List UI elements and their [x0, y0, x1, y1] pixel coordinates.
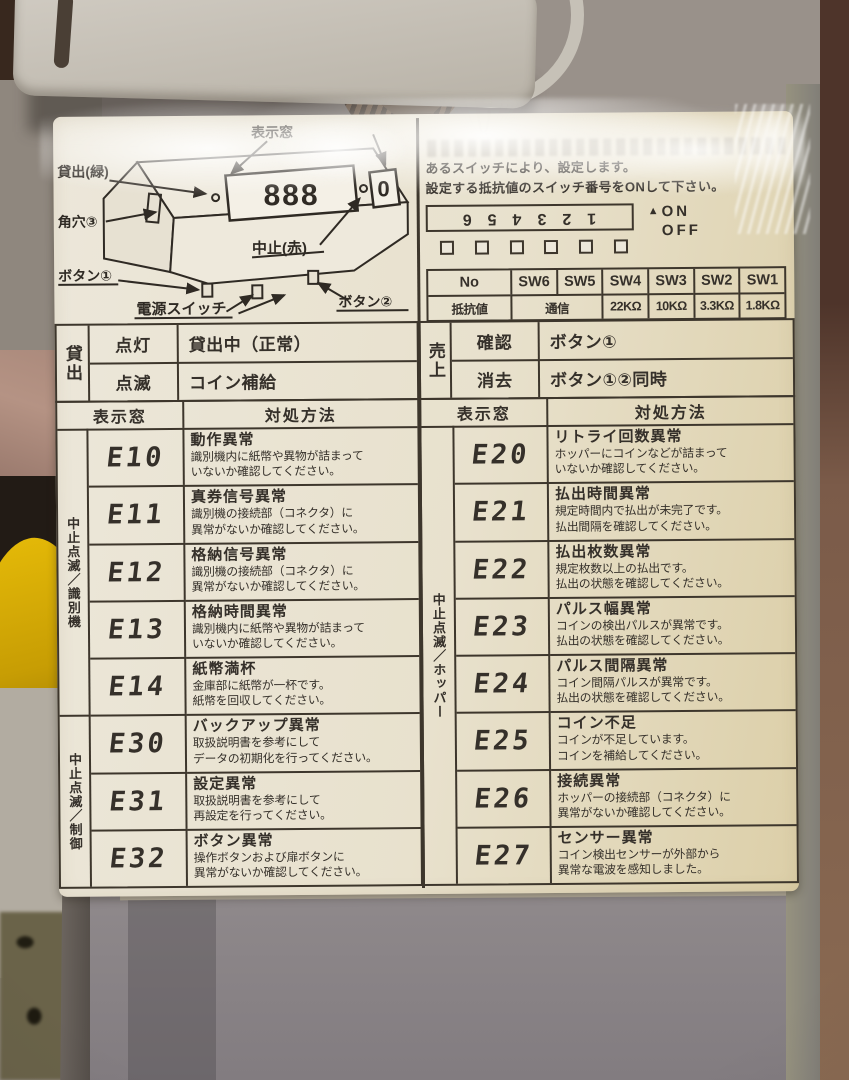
sw-value-sw1: 1.8KΩ — [739, 292, 785, 317]
display-window-label: 表示窓 — [250, 124, 293, 140]
lend-state-on: 点灯 — [90, 325, 179, 362]
error-code: E26 — [457, 769, 551, 827]
device-diagram: 888 0 貸出(緑) 角穴③ 表示窓 中止(赤) — [55, 118, 415, 321]
sw-header-sw4: SW4 — [601, 269, 647, 293]
off-label: OFF — [662, 222, 701, 239]
lend-state-blink: 点滅 — [90, 361, 179, 400]
sales-status-table: 売上 確認 ボタン① 消去 ボタン①②同時 — [419, 318, 796, 400]
error-code: E22 — [455, 540, 549, 598]
error-row: 設定異常 取扱説明書を参考にして 再設定を行ってください。 — [187, 770, 420, 829]
error-title: 格納時間異常 — [192, 602, 416, 622]
error-desc: コインの検出パルスが異常です。 払出の状態を確認してください。 — [556, 617, 792, 650]
button2-label: ボタン② — [338, 293, 392, 309]
instruction-label: 888 0 貸出(緑) 角穴③ 表示窓 中止(赤) — [53, 111, 799, 897]
error-title: 動作異常 — [190, 430, 414, 450]
error-row: 接続異常 ホッパーの接続部（コネクタ）に 異常がないか確認してください。 — [551, 767, 796, 826]
error-desc: コインが不足しています。 コインを補給してください。 — [557, 731, 793, 764]
dip-lever — [440, 241, 454, 255]
sw-header-sw5: SW5 — [556, 269, 602, 293]
error-code: E31 — [91, 771, 187, 829]
error-code: E24 — [456, 654, 550, 712]
error-row: コイン不足 コインが不足しています。 コインを補給してください。 — [551, 709, 796, 768]
error-row: バックアップ異常 取扱説明書を参考にして データの初期化を行ってください。 — [187, 712, 420, 771]
on-off-legend: ▲ON OFF — [648, 203, 701, 241]
sw-value-sw4: 22KΩ — [602, 293, 648, 318]
error-desc: 識別機内に紙幣や異物が詰まって いないか確認してください。 — [192, 620, 416, 652]
lend-row-group-label: 貸出 — [57, 326, 91, 401]
dip-lever — [475, 240, 489, 254]
error-desc: 規定時間内で払出が未完了です。 払出間隔を確認してください。 — [555, 502, 791, 535]
settings-instruction-2: 設定する抵抗値のスイッチ番号をONして下さい。 — [425, 176, 787, 198]
error-desc: 識別機の接続部（コネクタ）に 異常がないか確認してください。 — [191, 563, 415, 595]
lend-desc-on: 貸出中（正常） — [179, 323, 417, 361]
error-title: 払出枚数異常 — [555, 542, 791, 562]
error-code: E23 — [456, 597, 550, 655]
error-title: ボタン異常 — [194, 831, 418, 851]
side-label-hopper: 中止点滅／ホッパー — [421, 426, 458, 884]
dip-lever — [510, 240, 524, 254]
sales-desc-clear: ボタン①②同時 — [540, 357, 793, 397]
error-title: バックアップ異常 — [193, 716, 417, 736]
sw-header-sw6: SW6 — [510, 269, 556, 293]
dip-switch-numbers: 123456 — [447, 208, 613, 227]
error-title: リトライ回数異常 — [554, 427, 790, 447]
sw-value-sw3: 10KΩ — [647, 292, 693, 317]
lend-desc-blink: コイン補給 — [179, 360, 417, 400]
error-row: センサー異常 コイン検出センサーが外部から 異常な電波を感知しました。 — [552, 824, 797, 883]
sales-desc-confirm: ボタン① — [540, 320, 793, 358]
sub-display-digit: 0 — [377, 176, 389, 201]
error-code: E32 — [92, 829, 188, 887]
sw-header-sw3: SW3 — [647, 268, 693, 292]
error-row: リトライ回数異常 ホッパーにコインなどが詰まって いないか確認してください。 — [548, 423, 793, 482]
error-header-action-right: 対処方法 — [548, 397, 793, 425]
settings-section: あるスイッチにより、設定します。 設定する抵抗値のスイッチ番号をONして下さい。… — [425, 121, 789, 321]
sw-row-label: 抵抗値 — [428, 294, 510, 320]
error-desc: コイン間隔パルスが異常です。 払出の状態を確認してください。 — [556, 674, 792, 707]
error-title: 紙幣満杯 — [192, 659, 416, 679]
sales-state-confirm: 確認 — [452, 322, 540, 359]
sw-header-no: No — [428, 270, 510, 295]
error-desc: 識別機内に紙幣や異物が詰まって いないか確認してください。 — [191, 448, 415, 480]
error-desc: コイン検出センサーが外部から 異常な電波を感知しました。 — [558, 846, 794, 879]
up-arrow-icon: ▲ — [648, 205, 662, 219]
error-code: E21 — [455, 482, 549, 540]
error-desc: 取扱説明書を参考にして データの初期化を行ってください。 — [193, 734, 417, 766]
panel-seam — [128, 896, 216, 1080]
error-code: E27 — [458, 826, 552, 884]
sw-header-sw1: SW1 — [738, 268, 784, 292]
error-desc: 操作ボタンおよび扉ボタンに 異常がないか確認してください。 — [194, 849, 418, 881]
error-code: E30 — [91, 714, 187, 772]
error-desc: 識別機の接続部（コネクタ）に 異常がないか確認してください。 — [191, 505, 415, 537]
dip-switch-figure: 123456 ▲ON OFF — [426, 202, 788, 242]
dip-switch-body: 123456 — [426, 203, 634, 232]
metal-bracket — [12, 0, 537, 109]
error-title: 払出時間異常 — [555, 484, 791, 504]
sw-header-sw2: SW2 — [693, 268, 739, 292]
error-code: E13 — [90, 600, 186, 658]
error-header-display-left: 表示窓 — [57, 402, 184, 429]
display-digits: 888 — [263, 179, 319, 212]
error-title: センサー異常 — [558, 828, 794, 848]
sales-state-clear: 消去 — [452, 359, 540, 398]
error-title: パルス間隔異常 — [556, 656, 792, 676]
error-desc: ホッパーにコインなどが詰まって いないか確認してください。 — [555, 445, 791, 478]
error-header-action-left: 対処方法 — [184, 400, 417, 428]
square-hole-label: 角穴③ — [58, 214, 98, 230]
error-row: 動作異常 識別機内に紙幣や異物が詰まって いないか確認してください。 — [184, 426, 417, 485]
error-desc: 規定枚数以上の払出です。 払出の状態を確認してください。 — [555, 560, 791, 593]
error-desc: 金庫部に紙幣が一杯です。 紙幣を回収してください。 — [192, 677, 416, 709]
error-row: パルス幅異常 コインの検出パルスが異常です。 払出の状態を確認してください。 — [550, 595, 795, 654]
error-title: 設定異常 — [193, 774, 417, 794]
error-code: E12 — [89, 542, 185, 600]
error-header-display-right: 表示窓 — [421, 399, 548, 426]
error-desc: ホッパーの接続部（コネクタ）に 異常がないか確認してください。 — [557, 789, 793, 822]
error-desc: 取扱説明書を参考にして 再設定を行ってください。 — [193, 792, 417, 824]
error-row: 払出枚数異常 規定枚数以上の払出です。 払出の状態を確認してください。 — [549, 538, 794, 597]
sw-comm-cell: 通信 — [510, 293, 602, 319]
error-title: 真券信号異常 — [191, 487, 415, 507]
error-row: 格納時間異常 識別機内に紙幣や異物が詰まって いないか確認してください。 — [186, 598, 419, 657]
error-table-left: 表示窓 対処方法 中止点滅／識別機 中止点滅／制御 E10 動作異常 識別機内に… — [55, 398, 423, 889]
error-row: 真券信号異常 識別機の接続部（コネクタ）に 異常がないか確認してください。 — [185, 483, 418, 542]
error-title: コイン不足 — [557, 713, 793, 733]
resistance-switch-table: No SW6 SW5 SW4 SW3 SW2 SW1 抵抗値 通信 22KΩ 1… — [426, 266, 786, 322]
error-row: ボタン異常 操作ボタンおよび扉ボタンに 異常がないか確認してください。 — [188, 827, 421, 886]
error-code: E14 — [90, 657, 186, 715]
dip-lever — [544, 240, 558, 254]
machine-photo: 888 0 貸出(緑) 角穴③ 表示窓 中止(赤) — [0, 0, 849, 1080]
power-switch-label: 電源スイッチ — [136, 300, 226, 319]
error-row: 格納信号異常 識別機の接続部（コネクタ）に 異常がないか確認してください。 — [185, 541, 418, 600]
error-title: 格納信号異常 — [191, 545, 415, 565]
dip-lever — [579, 240, 593, 254]
side-label-discriminator: 中止点滅／識別機 — [57, 429, 90, 715]
lend-green-label: 貸出(緑) — [56, 163, 108, 179]
error-code: E11 — [89, 485, 185, 543]
sales-row-group-label: 売上 — [421, 323, 453, 398]
lend-status-table: 貸出 点灯 貸出中（正常） 点滅 コイン補給 — [55, 321, 420, 403]
error-code: E10 — [88, 428, 184, 486]
error-title: パルス幅異常 — [556, 599, 792, 619]
dip-lever — [614, 239, 628, 253]
error-title: 接続異常 — [557, 771, 793, 791]
error-row: 払出時間異常 規定時間内で払出が未完了です。 払出間隔を確認してください。 — [549, 480, 794, 539]
dip-switch-levers — [430, 239, 638, 255]
error-code: E25 — [457, 711, 551, 769]
side-label-control: 中止点滅／制御 — [60, 715, 92, 887]
on-label: ON — [662, 203, 691, 220]
door-frame-strip — [820, 0, 849, 1080]
sw-value-sw2: 3.3KΩ — [693, 292, 739, 317]
button1-label: ボタン① — [58, 267, 112, 283]
error-row: パルス間隔異常 コイン間隔パルスが異常です。 払出の状態を確認してください。 — [550, 652, 795, 711]
error-table-right: 表示窓 対処方法 中止点滅／ホッパー E20 リトライ回数異常 ホッパーにコイン… — [419, 395, 799, 886]
error-row: 紙幣満杯 金庫部に紙幣が一杯です。 紙幣を回収してください。 — [186, 655, 419, 714]
error-code: E20 — [454, 425, 548, 483]
glare-obscured-text-line — [427, 137, 785, 157]
